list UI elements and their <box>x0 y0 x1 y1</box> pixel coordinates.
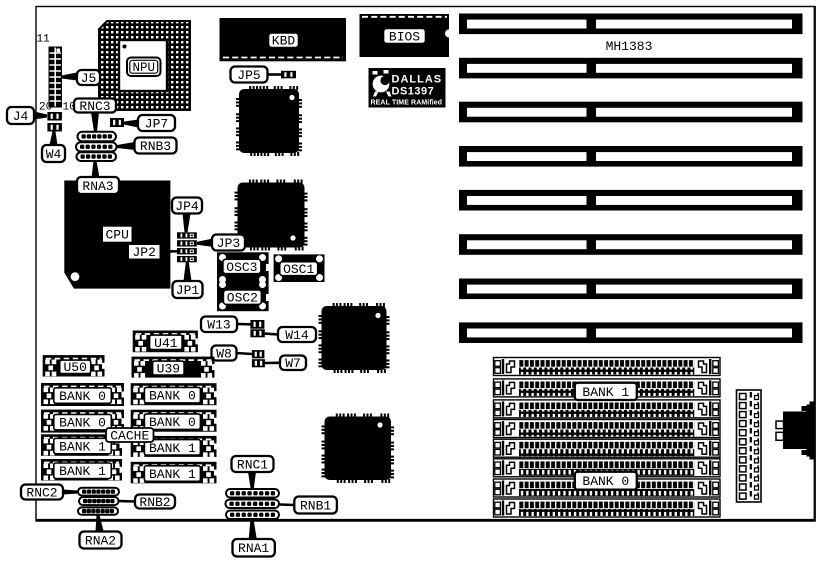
svg-text:BANK 1: BANK 1 <box>59 439 106 454</box>
svg-text:RNB2: RNB2 <box>139 495 170 510</box>
svg-text:BANK 1: BANK 1 <box>59 464 106 479</box>
svg-text:W4: W4 <box>46 147 62 162</box>
svg-text:JP2: JP2 <box>132 245 155 260</box>
svg-text:JP5: JP5 <box>237 68 260 83</box>
svg-text:U39: U39 <box>157 362 180 377</box>
svg-text:RNA1: RNA1 <box>238 541 269 556</box>
svg-text:RNA2: RNA2 <box>85 533 116 548</box>
svg-text:J5: J5 <box>81 71 97 86</box>
svg-text:W7: W7 <box>285 356 301 371</box>
svg-text:20: 20 <box>39 102 52 114</box>
svg-text:REAL TIME RAMified: REAL TIME RAMified <box>371 100 443 107</box>
svg-text:J4: J4 <box>13 109 29 124</box>
svg-text:JP3: JP3 <box>217 236 240 251</box>
svg-text:DALLAS: DALLAS <box>392 74 443 86</box>
svg-text:BANK 0: BANK 0 <box>149 389 196 404</box>
svg-text:W14: W14 <box>285 328 309 343</box>
svg-text:BANK 1: BANK 1 <box>582 385 629 400</box>
svg-text:BANK 1: BANK 1 <box>149 467 196 482</box>
svg-text:BANK 0: BANK 0 <box>59 416 106 431</box>
svg-text:BANK 0: BANK 0 <box>149 415 196 430</box>
svg-text:RNC3: RNC3 <box>79 99 110 114</box>
svg-text:11: 11 <box>37 34 51 46</box>
svg-text:CACHE: CACHE <box>110 428 149 443</box>
svg-text:NPU: NPU <box>133 61 156 75</box>
svg-text:U50: U50 <box>63 360 86 375</box>
svg-text:JP4: JP4 <box>175 199 199 214</box>
svg-text:RNC2: RNC2 <box>26 485 57 500</box>
svg-text:W8: W8 <box>216 346 232 361</box>
svg-text:KBD: KBD <box>272 34 296 49</box>
svg-text:CPU: CPU <box>105 228 128 243</box>
svg-text:RNA3: RNA3 <box>82 179 113 194</box>
svg-text:BANK 1: BANK 1 <box>149 441 196 456</box>
svg-text:BANK 0: BANK 0 <box>59 389 106 404</box>
svg-text:OSC2: OSC2 <box>227 291 258 306</box>
svg-text:DS1397: DS1397 <box>392 86 435 98</box>
svg-text:OSC3: OSC3 <box>226 260 257 275</box>
svg-text:RNB3: RNB3 <box>140 139 171 154</box>
svg-text:RNC1: RNC1 <box>237 457 268 472</box>
svg-text:RNB1: RNB1 <box>300 498 331 513</box>
svg-text:JP7: JP7 <box>145 116 168 131</box>
svg-text:OSC1: OSC1 <box>283 262 314 277</box>
svg-text:U41: U41 <box>154 336 178 351</box>
svg-text:W13: W13 <box>207 318 230 333</box>
svg-text:JP1: JP1 <box>176 283 200 298</box>
svg-text:MH1383: MH1383 <box>606 39 653 54</box>
svg-text:BIOS: BIOS <box>389 29 420 44</box>
svg-text:BANK 0: BANK 0 <box>582 474 629 489</box>
